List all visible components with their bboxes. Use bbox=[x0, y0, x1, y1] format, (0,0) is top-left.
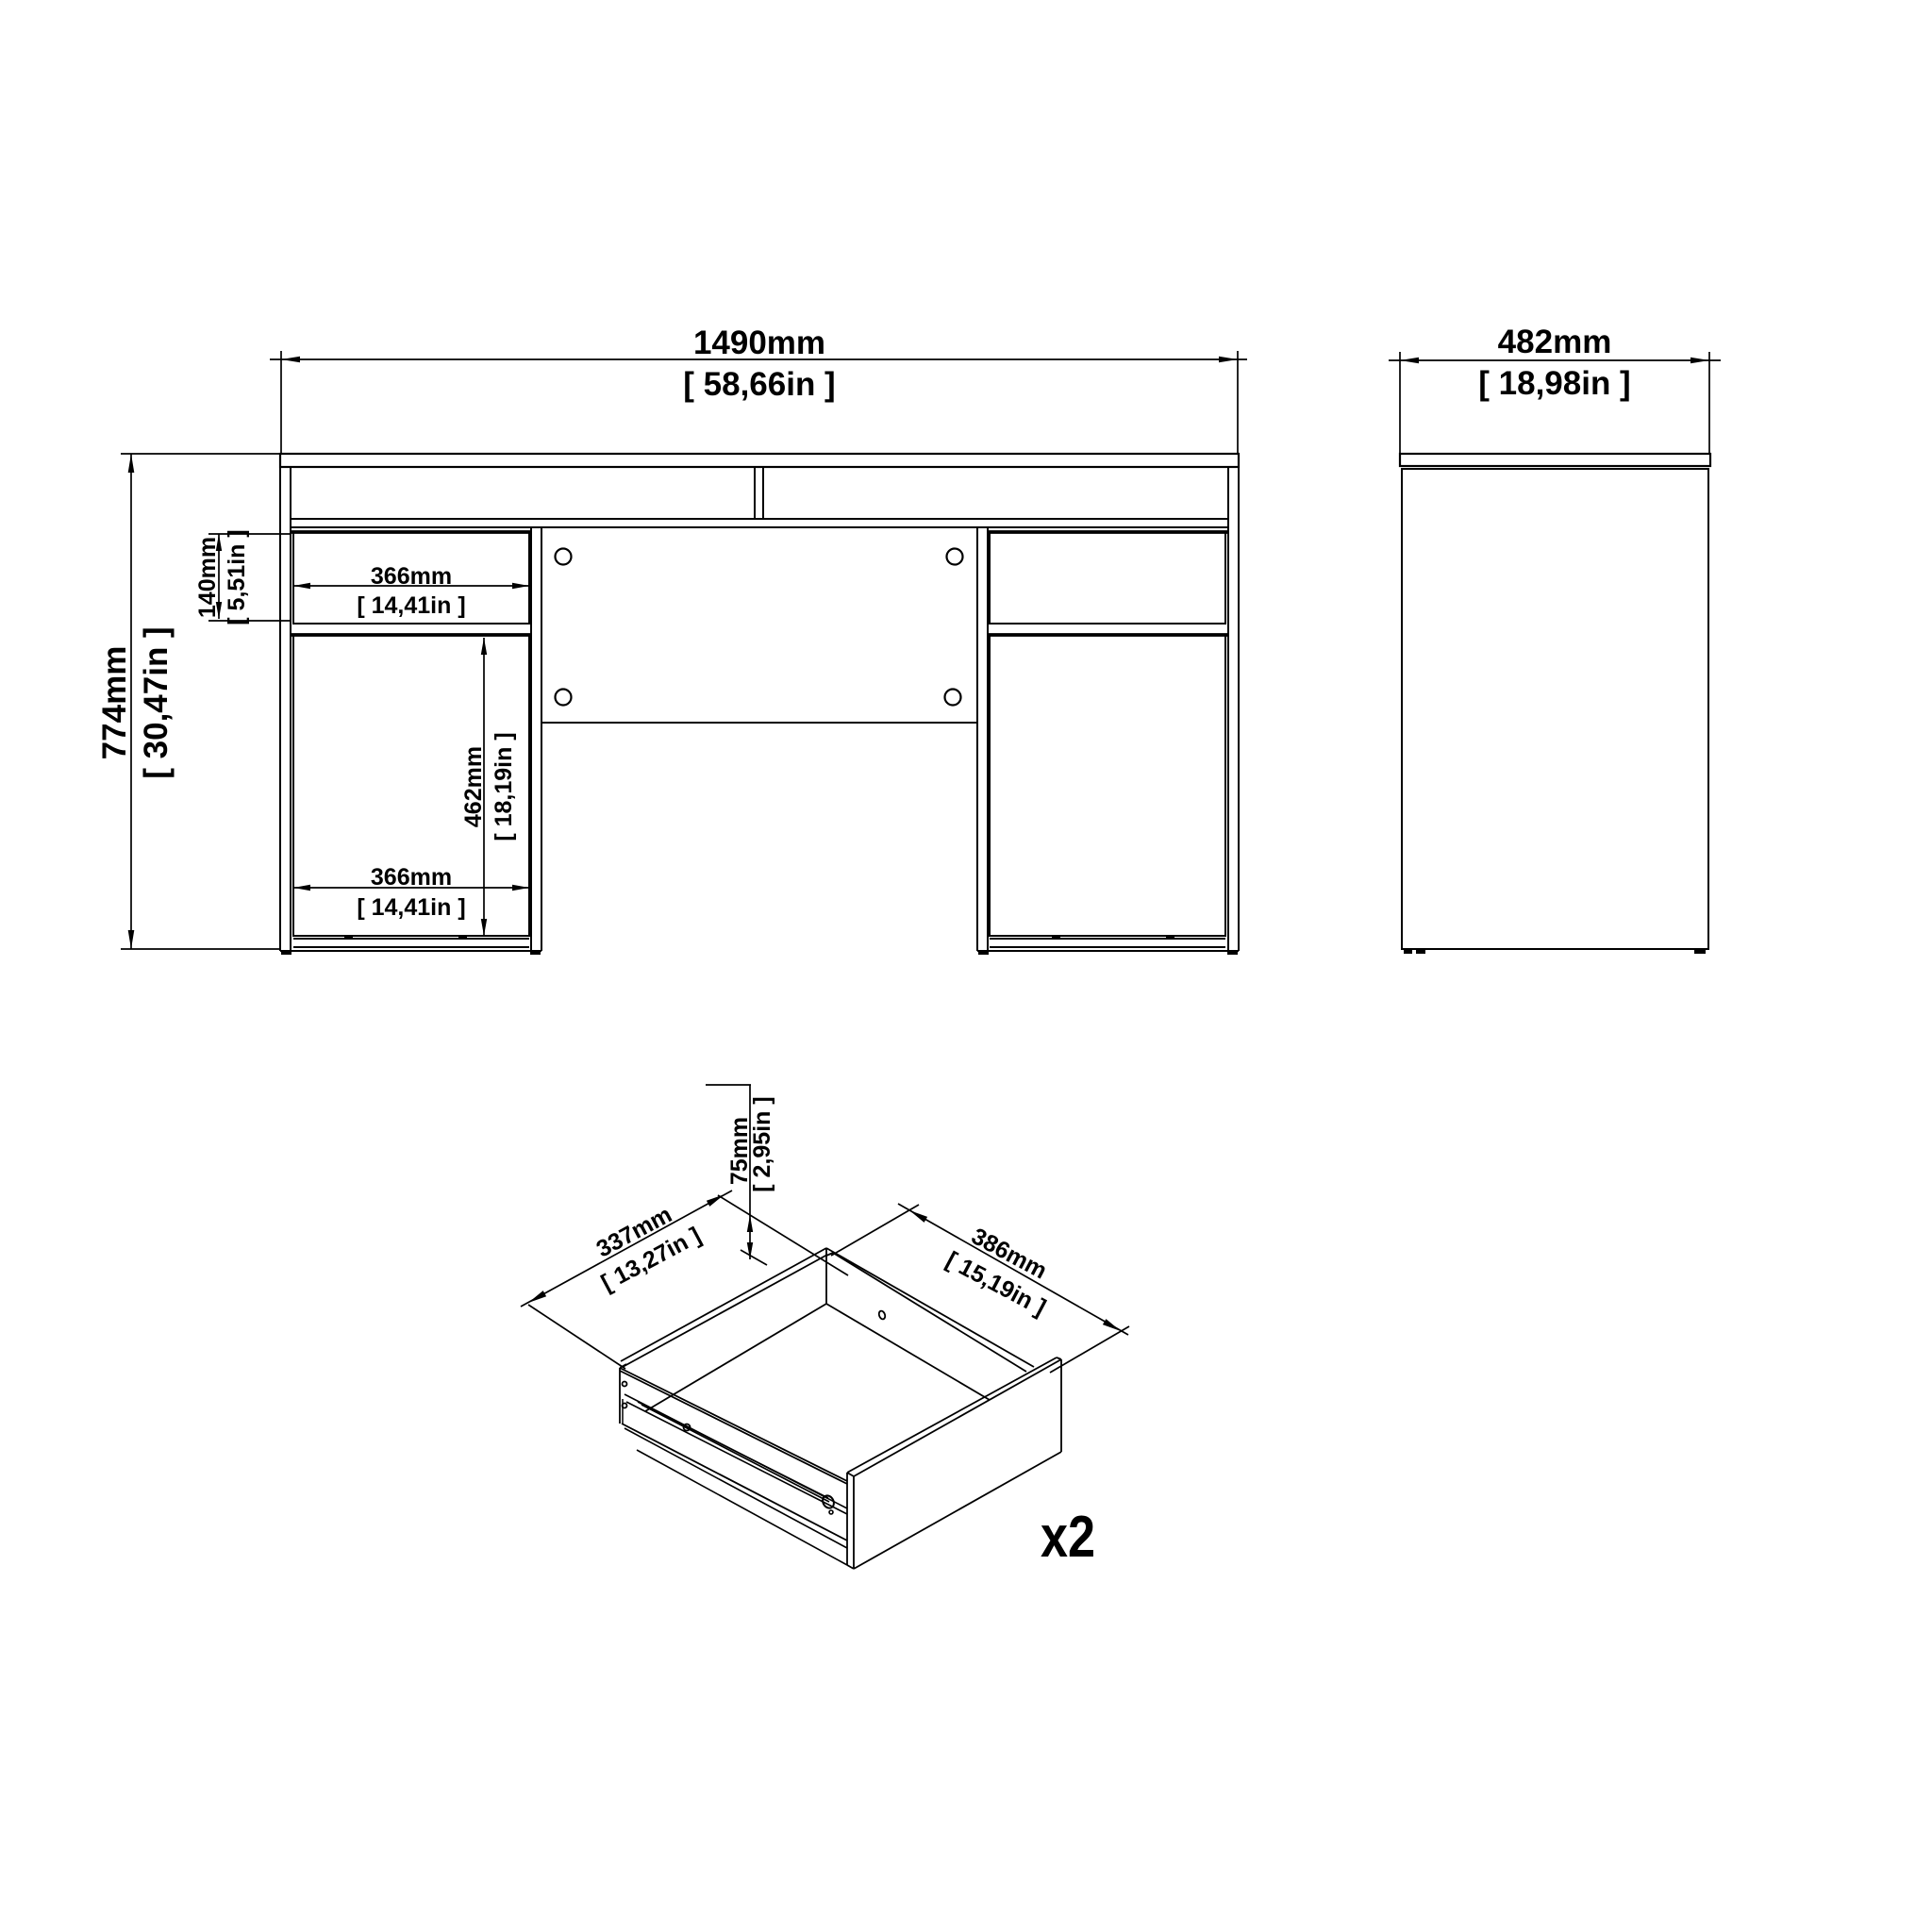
svg-text:x2: x2 bbox=[1041, 1505, 1095, 1570]
svg-text:[ 14,41in ]: [ 14,41in ] bbox=[357, 894, 465, 921]
svg-text:1490mm: 1490mm bbox=[693, 325, 825, 361]
svg-text:[ 5,51in ]: [ 5,51in ] bbox=[224, 529, 250, 625]
svg-text:[ 30,47in ]: [ 30,47in ] bbox=[138, 626, 175, 778]
svg-text:482mm: 482mm bbox=[1498, 324, 1612, 360]
svg-text:774mm: 774mm bbox=[96, 646, 133, 760]
svg-text:[ 58,66in ]: [ 58,66in ] bbox=[683, 366, 835, 403]
svg-text:366mm: 366mm bbox=[371, 864, 452, 891]
svg-text:[ 2,95in ]: [ 2,95in ] bbox=[749, 1096, 775, 1191]
svg-text:366mm: 366mm bbox=[371, 563, 452, 590]
svg-text:462mm: 462mm bbox=[460, 746, 487, 827]
svg-text:[ 14,41in ]: [ 14,41in ] bbox=[357, 592, 465, 619]
svg-text:[ 18,19in ]: [ 18,19in ] bbox=[491, 732, 517, 841]
svg-text:[ 18,98in ]: [ 18,98in ] bbox=[1478, 365, 1630, 402]
svg-text:140mm: 140mm bbox=[194, 537, 221, 618]
